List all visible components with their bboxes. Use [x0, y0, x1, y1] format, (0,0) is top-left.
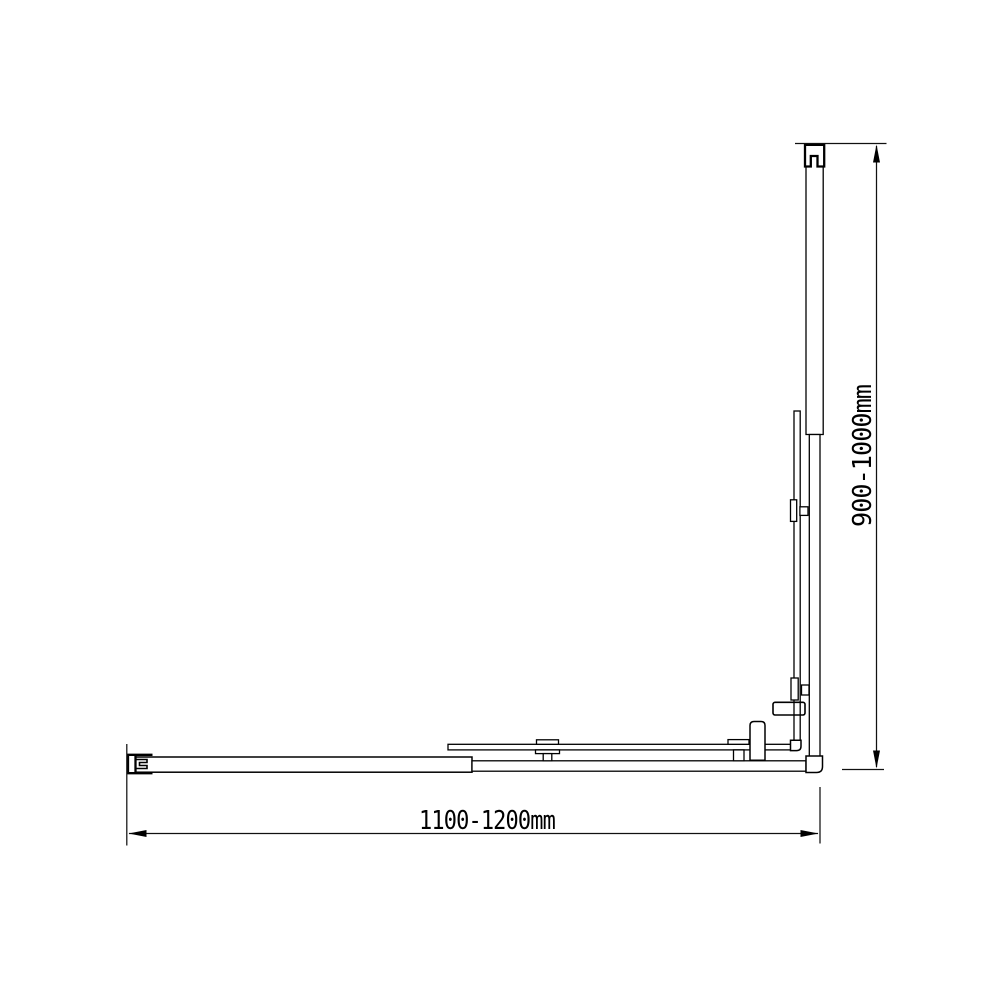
- wall-channel-bar-right: [806, 167, 823, 435]
- clamp-plate: [791, 678, 798, 700]
- sliding-glass-panels: [448, 411, 801, 751]
- roller-stem: [734, 750, 745, 761]
- clamp-tab: [800, 507, 808, 516]
- sliding-panel-horizontal: [448, 744, 793, 750]
- support-rail-bottom: [472, 761, 806, 771]
- clamp-tab: [802, 685, 810, 695]
- arrowhead-down-icon: [873, 751, 880, 769]
- width-dimension-label: 1100-1200mm: [419, 806, 555, 836]
- right-wall-assembly: [805, 145, 824, 757]
- roller-top-plate: [537, 740, 559, 745]
- door-stopper-knob: [750, 722, 765, 761]
- arrowhead-left-icon: [129, 830, 147, 837]
- technical-drawing-page: 900-1000mm 1100-1200mm: [0, 0, 1000, 1000]
- roller-stem: [543, 754, 552, 761]
- corner-post: [806, 756, 823, 773]
- height-dimension-label: 900-1000mm: [848, 385, 878, 527]
- roller-bracket-mid: [536, 740, 560, 761]
- panel-corner-bracket: [791, 740, 802, 750]
- roller-top-plate: [728, 740, 749, 745]
- wall-profile-section-icon: [805, 145, 824, 167]
- arrowhead-up-icon: [873, 145, 880, 163]
- clamp-plate: [791, 500, 797, 522]
- arrowhead-right-icon: [801, 830, 819, 837]
- support-rail-right: [809, 435, 820, 757]
- fittings: [536, 500, 810, 761]
- bottom-wall-assembly: [128, 755, 806, 773]
- shower-enclosure-plan-drawing: 900-1000mm 1100-1200mm: [0, 0, 1000, 1000]
- fixed-panel-bar-bottom: [136, 757, 473, 772]
